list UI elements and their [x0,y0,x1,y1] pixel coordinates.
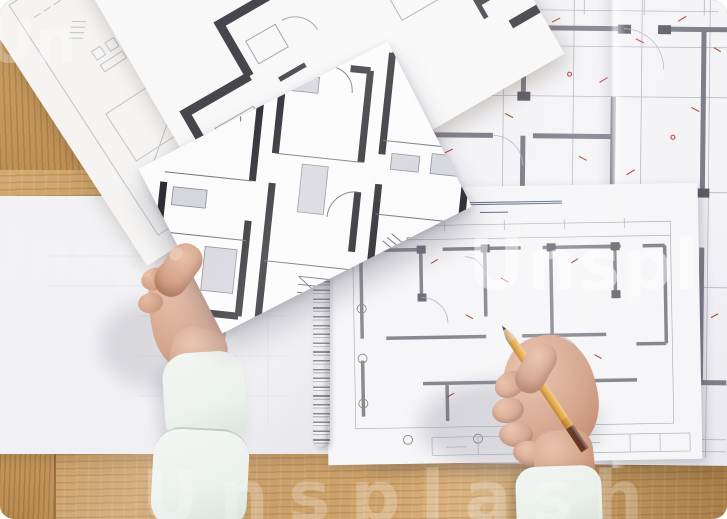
left-sleeve [149,426,250,519]
wood-plank-bottom-left [0,448,56,519]
photo-architect-desk: Un Unspl Unsp Unsplash [0,0,727,519]
right-sleeve-cuff [515,465,603,519]
spiral-binding [313,272,330,448]
